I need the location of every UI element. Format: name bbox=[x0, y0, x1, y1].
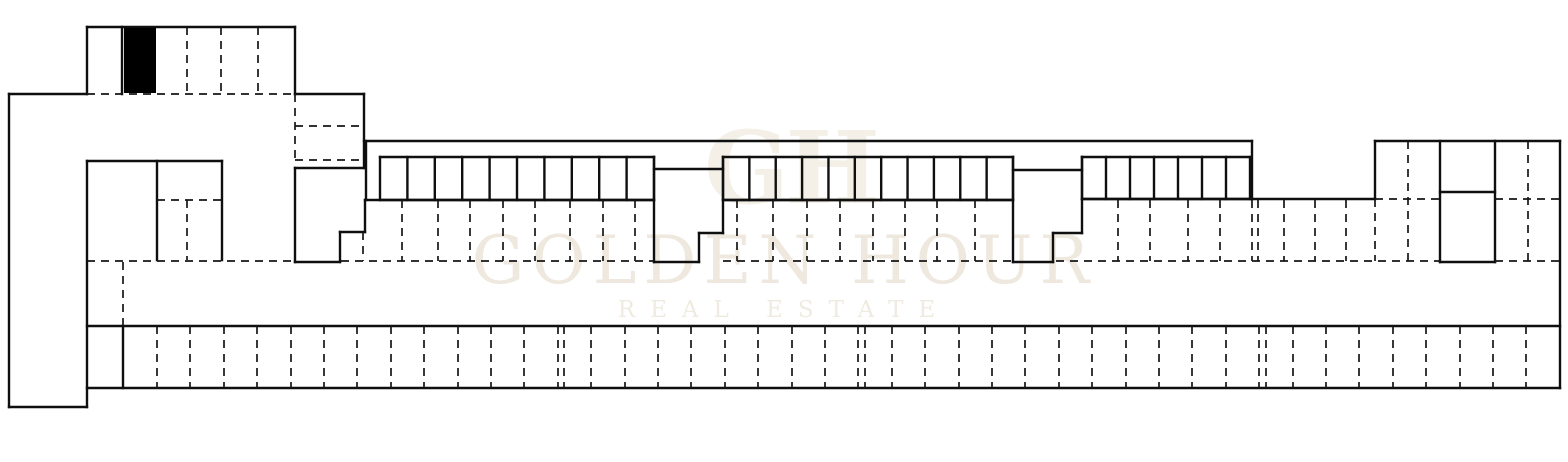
storage-cells-group bbox=[380, 157, 1250, 200]
floor-plan-svg bbox=[0, 0, 1568, 462]
structural-column bbox=[124, 28, 156, 93]
structural-column-group bbox=[124, 28, 156, 93]
parking-dividers-group bbox=[157, 200, 1526, 388]
floor-plan: GH GOLDEN HOUR REAL ESTATE bbox=[0, 0, 1568, 462]
partitions-dashed-group bbox=[87, 27, 1560, 326]
walls-solid-group bbox=[9, 27, 1560, 407]
